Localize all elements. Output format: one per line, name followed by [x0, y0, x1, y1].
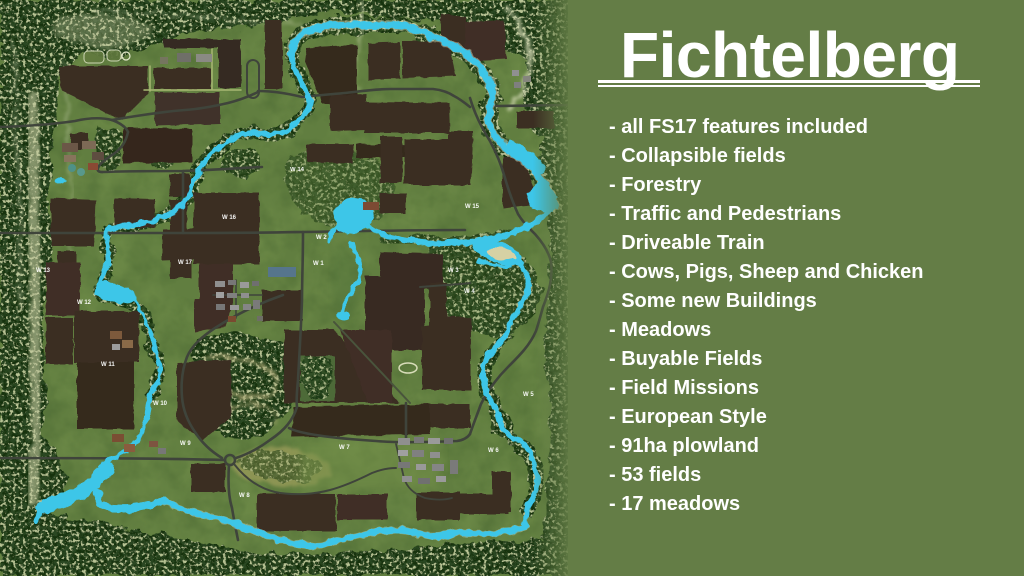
svg-text:W 14: W 14	[290, 167, 305, 173]
svg-text:W 2: W 2	[316, 235, 327, 241]
svg-text:W 3: W 3	[448, 268, 459, 274]
svg-text:W 5: W 5	[523, 392, 534, 398]
svg-text:W 12: W 12	[77, 300, 92, 306]
svg-text:W 15: W 15	[465, 204, 480, 210]
svg-text:W 8: W 8	[239, 493, 250, 499]
svg-text:W 16: W 16	[222, 215, 237, 221]
svg-text:W 11: W 11	[101, 362, 115, 368]
svg-text:W 10: W 10	[153, 401, 168, 407]
svg-text:W 17: W 17	[178, 260, 193, 266]
svg-text:W 6: W 6	[488, 448, 499, 454]
svg-text:W 13: W 13	[36, 268, 51, 274]
svg-text:W 1: W 1	[313, 261, 324, 267]
svg-text:W 4: W 4	[464, 289, 475, 295]
svg-text:W 7: W 7	[339, 445, 350, 451]
svg-text:W 9: W 9	[180, 441, 191, 447]
